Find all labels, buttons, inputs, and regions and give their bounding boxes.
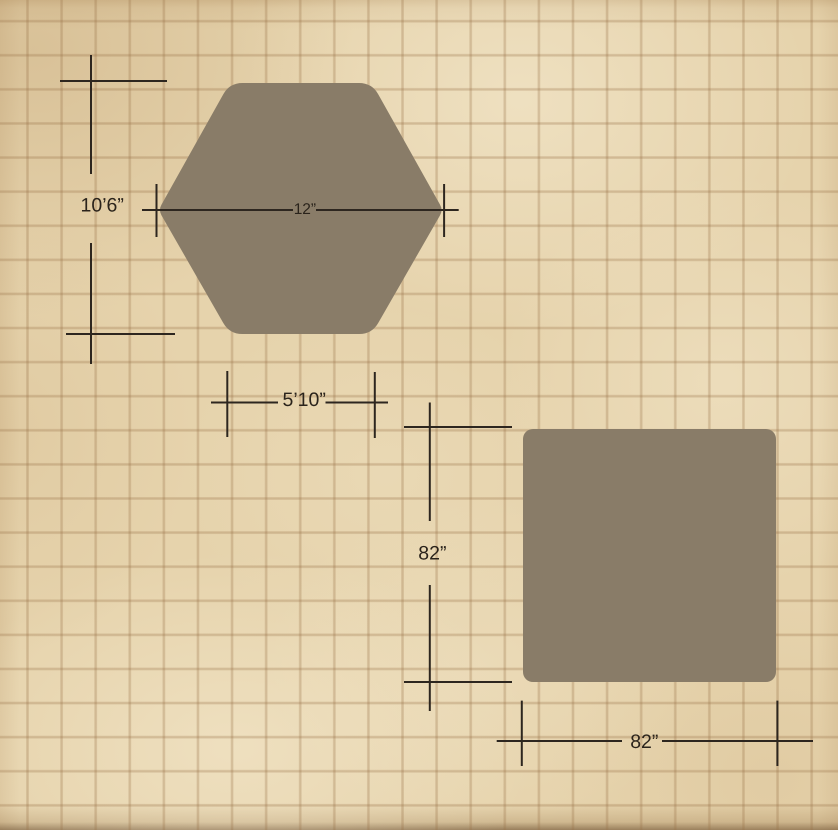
- svg-text:82”: 82”: [418, 543, 446, 565]
- svg-text:12”: 12”: [294, 201, 316, 218]
- svg-text:82”: 82”: [630, 731, 658, 753]
- svg-text:5’10”: 5’10”: [283, 389, 326, 411]
- svg-text:10’6”: 10’6”: [81, 195, 124, 217]
